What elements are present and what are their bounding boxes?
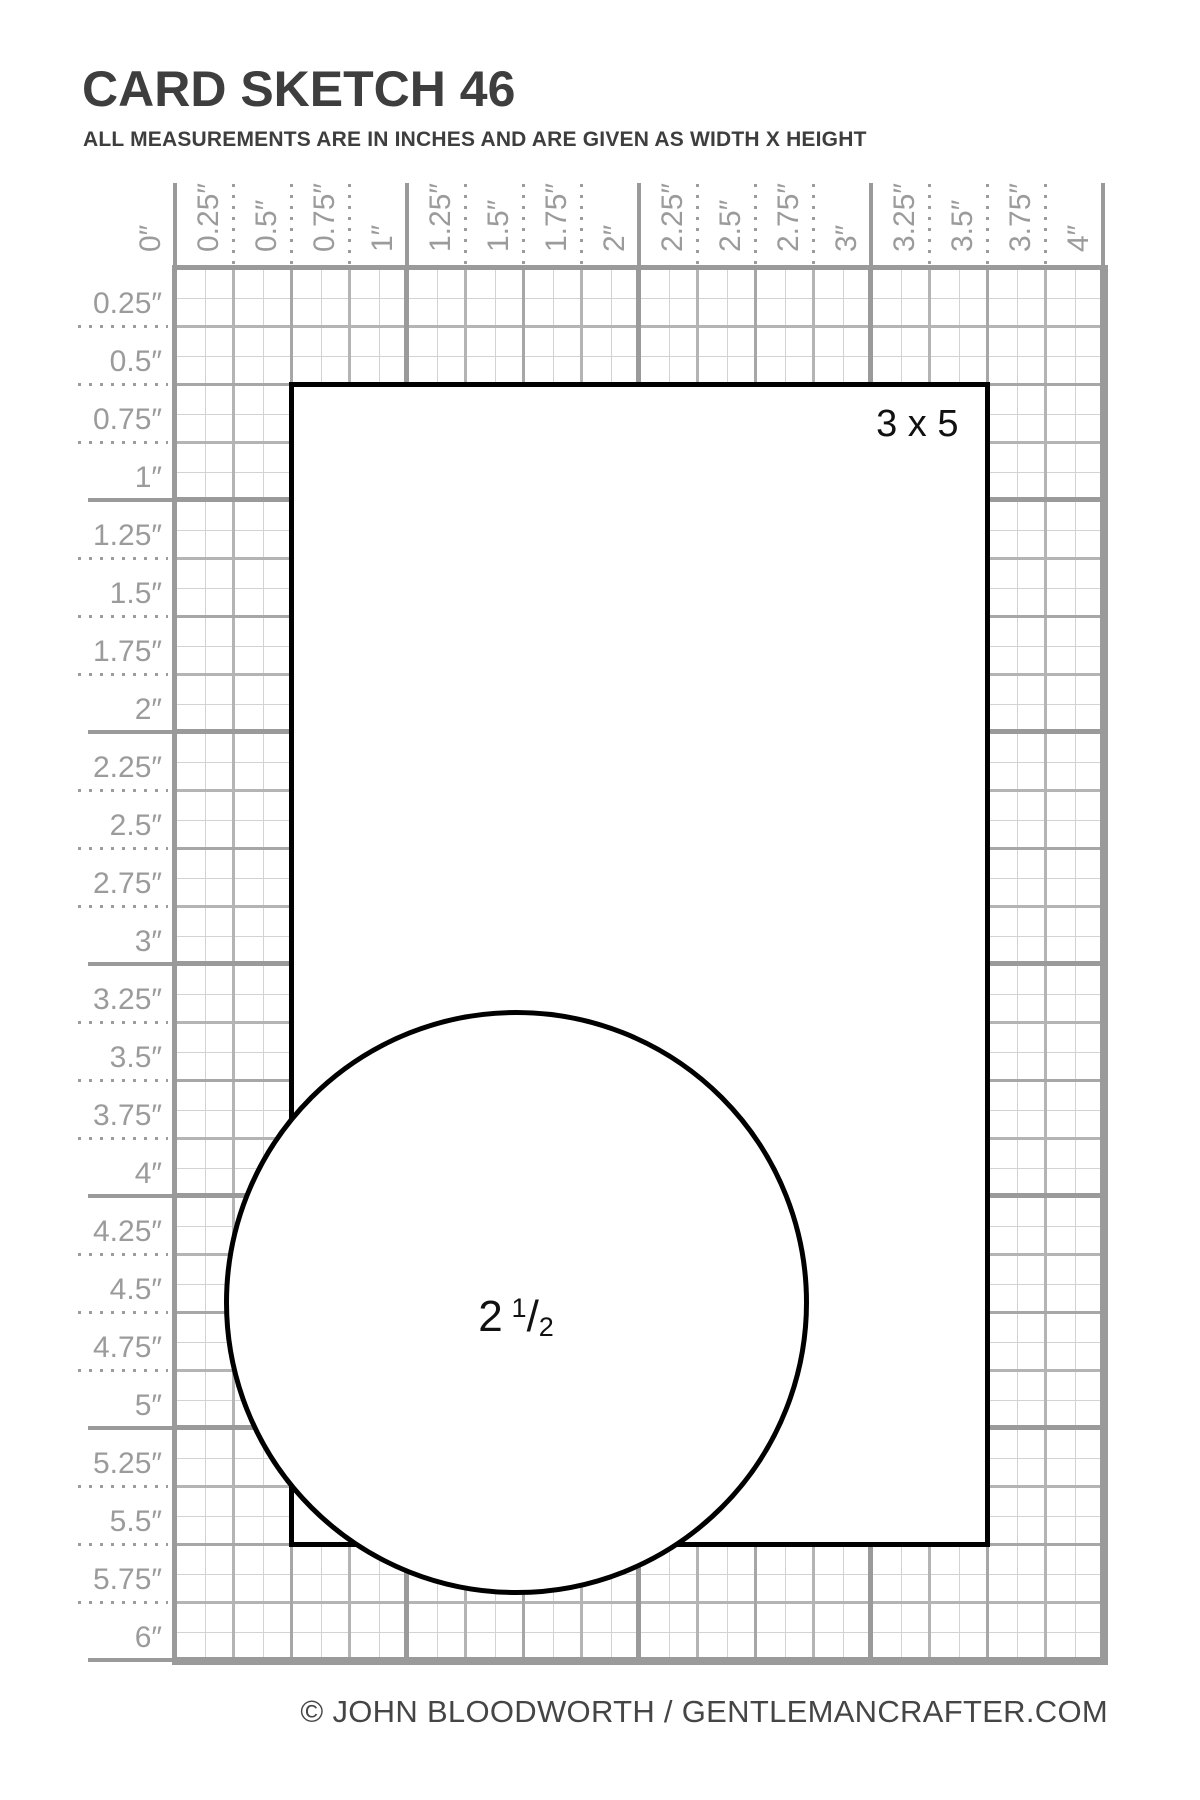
top-ruler-label: 1″ bbox=[365, 142, 401, 252]
top-ruler-label: 0.25″ bbox=[191, 142, 227, 252]
top-ruler-label: 2.25″ bbox=[655, 142, 691, 252]
top-ruler-label: 0″ bbox=[133, 142, 169, 252]
left-ruler-label: 6″ bbox=[40, 1620, 162, 1656]
left-ruler-tick-quarter bbox=[78, 1543, 168, 1546]
left-ruler-tick-inch bbox=[88, 730, 175, 734]
card-sketch-page: CARD SKETCH 46 ALL MEASUREMENTS ARE IN I… bbox=[0, 0, 1200, 1800]
top-ruler-label: 2.75″ bbox=[771, 142, 807, 252]
left-ruler-label: 1″ bbox=[40, 460, 162, 496]
top-ruler-label: 3.25″ bbox=[887, 142, 923, 252]
left-ruler-label: 4″ bbox=[40, 1156, 162, 1192]
top-ruler-tick-quarter bbox=[696, 184, 699, 264]
top-ruler-tick-quarter bbox=[928, 184, 931, 264]
left-ruler-label: 4.5″ bbox=[40, 1272, 162, 1308]
left-ruler-tick-inch bbox=[88, 1426, 175, 1430]
circle-label-slash: / bbox=[527, 1292, 539, 1341]
left-ruler-label: 3″ bbox=[40, 924, 162, 960]
top-ruler-tick-quarter bbox=[1044, 184, 1047, 264]
left-ruler-tick-quarter bbox=[78, 789, 168, 792]
left-ruler-label: 3.75″ bbox=[40, 1098, 162, 1134]
page-title: CARD SKETCH 46 bbox=[82, 64, 515, 114]
left-ruler-tick-quarter bbox=[78, 1485, 168, 1488]
left-ruler-tick-quarter bbox=[78, 847, 168, 850]
left-ruler-label: 1.5″ bbox=[40, 576, 162, 612]
left-ruler-tick-quarter bbox=[78, 441, 168, 444]
left-ruler-label: 5.5″ bbox=[40, 1504, 162, 1540]
left-ruler-label: 3.25″ bbox=[40, 982, 162, 1018]
circle-label-denominator: 2 bbox=[539, 1312, 554, 1342]
top-ruler-tick-inch bbox=[173, 183, 177, 268]
left-ruler-tick-quarter bbox=[78, 1253, 168, 1256]
top-ruler-label: 1.5″ bbox=[481, 142, 517, 252]
left-ruler-tick-quarter bbox=[78, 383, 168, 386]
left-ruler-label: 2.75″ bbox=[40, 866, 162, 902]
top-ruler-label: 1.25″ bbox=[423, 142, 459, 252]
top-ruler-tick-inch bbox=[637, 183, 641, 268]
card-size-label: 3 x 5 bbox=[876, 403, 958, 446]
left-ruler-label: 3.5″ bbox=[40, 1040, 162, 1076]
top-ruler-label: 2.5″ bbox=[713, 142, 749, 252]
left-ruler-tick-quarter bbox=[78, 615, 168, 618]
left-ruler-tick-quarter bbox=[78, 1137, 168, 1140]
top-ruler-label: 0.75″ bbox=[307, 142, 343, 252]
left-ruler-label: 4.75″ bbox=[40, 1330, 162, 1366]
circle-label-numerator: 1 bbox=[512, 1293, 527, 1323]
left-ruler-label: 4.25″ bbox=[40, 1214, 162, 1250]
top-ruler-tick-inch bbox=[405, 183, 409, 268]
left-ruler-tick-quarter bbox=[78, 1601, 168, 1604]
top-ruler-label: 0.5″ bbox=[249, 142, 285, 252]
left-ruler-tick-quarter bbox=[78, 1311, 168, 1314]
left-ruler-label: 5″ bbox=[40, 1388, 162, 1424]
top-ruler-tick-inch bbox=[869, 183, 873, 268]
left-ruler-tick-inch bbox=[88, 1194, 175, 1198]
left-ruler-tick-quarter bbox=[78, 1021, 168, 1024]
left-ruler-tick-quarter bbox=[78, 673, 168, 676]
left-ruler-label: 0.25″ bbox=[40, 286, 162, 322]
copyright-footer: © JOHN BLOODWORTH / GENTLEMANCRAFTER.COM bbox=[300, 1694, 1108, 1730]
top-ruler-tick-inch bbox=[1101, 183, 1105, 268]
top-ruler-tick-quarter bbox=[290, 184, 293, 264]
left-ruler-label: 2.5″ bbox=[40, 808, 162, 844]
top-ruler-tick-quarter bbox=[754, 184, 757, 264]
left-ruler-tick-quarter bbox=[78, 557, 168, 560]
top-ruler-tick-quarter bbox=[348, 184, 351, 264]
top-ruler-label: 2″ bbox=[597, 142, 633, 252]
left-ruler-tick-inch bbox=[88, 1658, 175, 1662]
left-ruler-tick-inch bbox=[88, 498, 175, 502]
top-ruler-tick-quarter bbox=[232, 184, 235, 264]
circle-outline: 2 1/2 bbox=[224, 1010, 809, 1595]
left-ruler-label: 0.5″ bbox=[40, 344, 162, 380]
left-ruler-tick-quarter bbox=[78, 1079, 168, 1082]
left-ruler-tick-quarter bbox=[78, 905, 168, 908]
top-ruler-label: 1.75″ bbox=[539, 142, 575, 252]
left-ruler-label: 1.25″ bbox=[40, 518, 162, 554]
left-ruler-label: 0.75″ bbox=[40, 402, 162, 438]
circle-size-label: 2 1/2 bbox=[478, 1292, 554, 1342]
top-ruler-label: 3.5″ bbox=[945, 142, 981, 252]
left-ruler-label: 1.75″ bbox=[40, 634, 162, 670]
top-ruler-label: 3″ bbox=[829, 142, 865, 252]
left-ruler-label: 5.75″ bbox=[40, 1562, 162, 1598]
left-ruler-label: 2.25″ bbox=[40, 750, 162, 786]
top-ruler-tick-quarter bbox=[986, 184, 989, 264]
left-ruler-label: 5.25″ bbox=[40, 1446, 162, 1482]
circle-label-whole: 2 bbox=[478, 1292, 502, 1341]
top-ruler-tick-quarter bbox=[464, 184, 467, 264]
top-ruler-tick-quarter bbox=[522, 184, 525, 264]
left-ruler-tick-inch bbox=[88, 962, 175, 966]
top-ruler-tick-quarter bbox=[580, 184, 583, 264]
left-ruler-tick-quarter bbox=[78, 1369, 168, 1372]
top-ruler-label: 4″ bbox=[1061, 142, 1097, 252]
top-ruler-label: 3.75″ bbox=[1003, 142, 1039, 252]
left-ruler-tick-quarter bbox=[78, 325, 168, 328]
left-ruler-label: 2″ bbox=[40, 692, 162, 728]
top-ruler-tick-quarter bbox=[812, 184, 815, 264]
